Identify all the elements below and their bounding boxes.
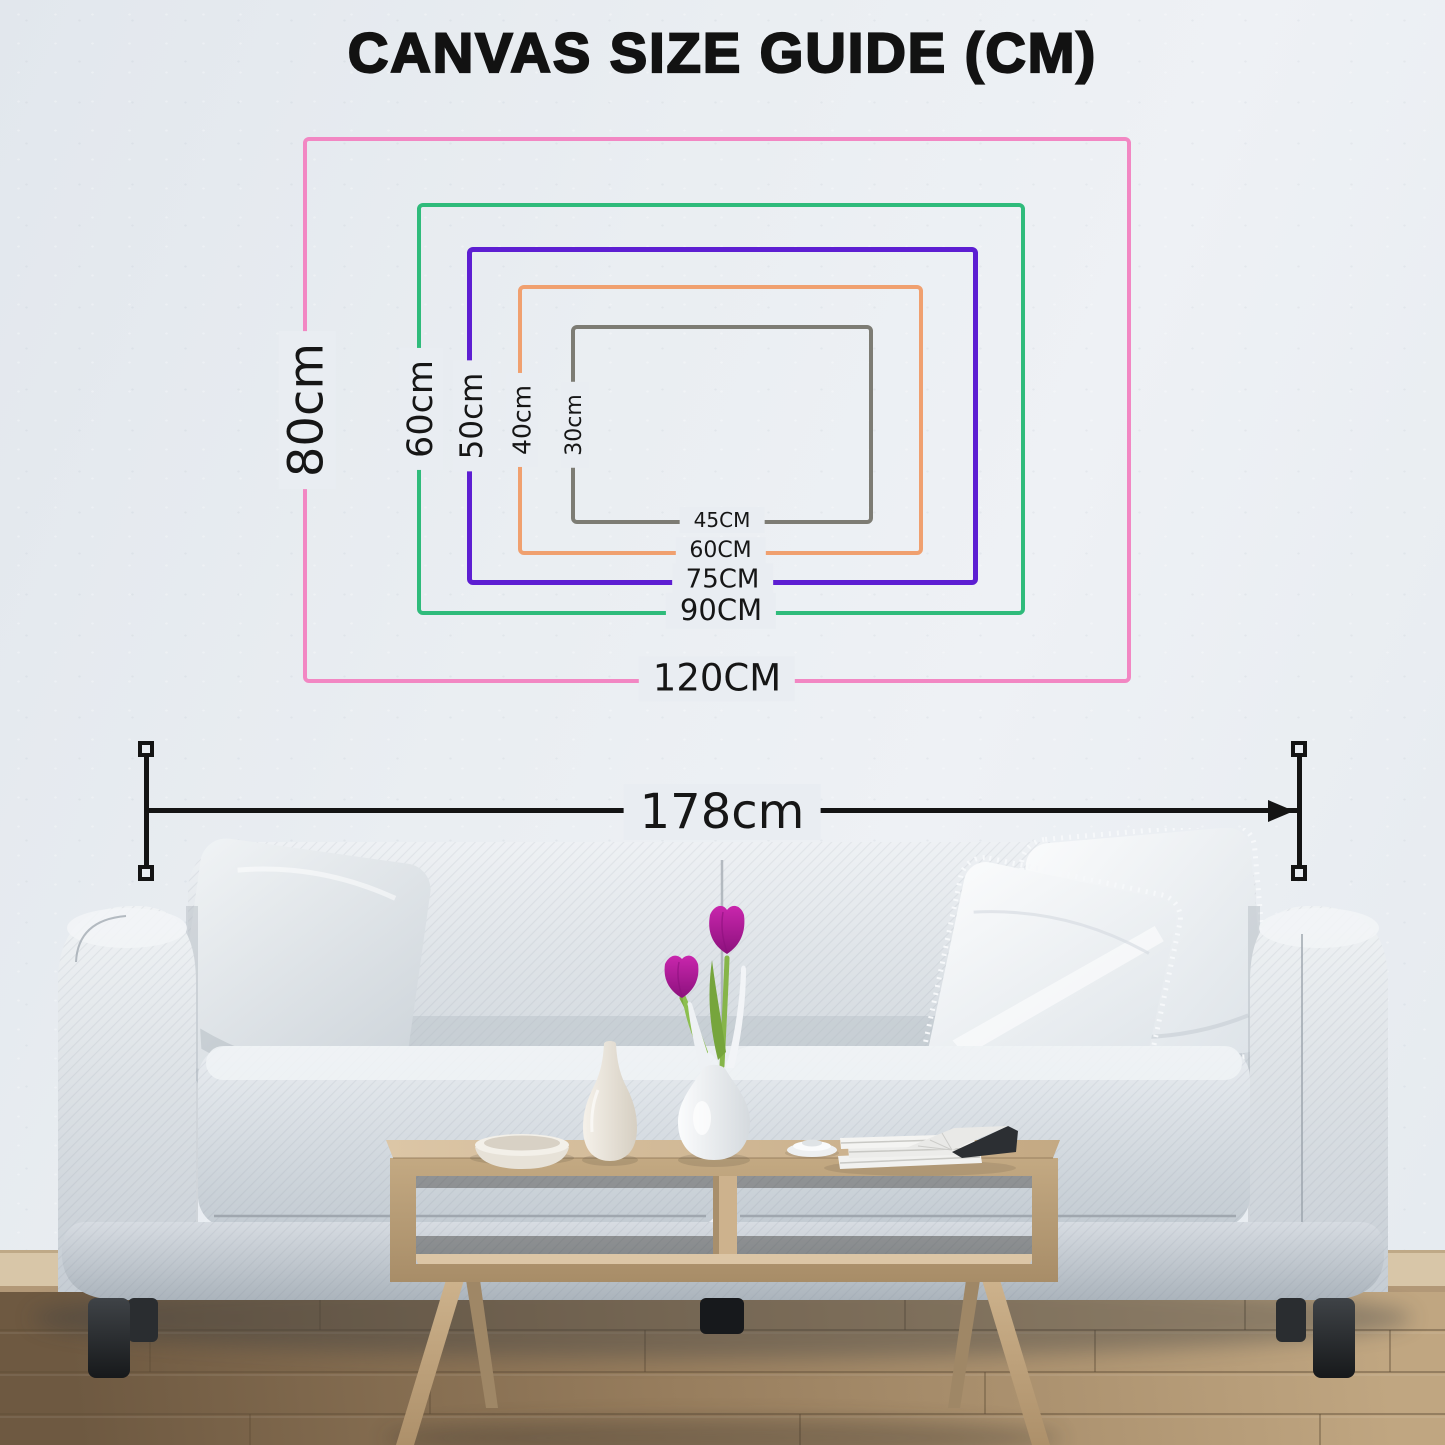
width-label-60cm: 60CM	[675, 537, 765, 565]
height-label-50cm: 50cm	[453, 361, 491, 472]
height-label-30cm: 30cm	[561, 382, 589, 468]
height-label-60cm: 60cm	[400, 348, 443, 470]
height-label-40cm: 40cm	[506, 373, 538, 467]
table-shelf	[414, 1254, 1034, 1264]
width-label-75cm: 75CM	[672, 564, 774, 597]
size-rect-45x30: 30cm 45CM	[571, 325, 873, 524]
canvas-size-guide-poster: CANVAS SIZE GUIDE (CM) 80cm 120CM 60cm 9…	[0, 0, 1445, 1445]
measurement-handle-icon	[1291, 741, 1307, 757]
table-side-left	[390, 1158, 416, 1282]
width-label-90cm: 90CM	[666, 593, 776, 629]
arrow-right-icon	[1268, 800, 1294, 822]
measurement-handle-icon	[138, 741, 154, 757]
width-label-45cm: 45CM	[680, 507, 765, 533]
height-label-80cm: 80cm	[279, 331, 336, 489]
page-title: CANVAS SIZE GUIDE (CM)	[0, 20, 1445, 85]
living-room-scene	[0, 828, 1445, 1445]
width-label-120cm: 120CM	[639, 657, 795, 702]
table-side-right	[1032, 1158, 1058, 1282]
